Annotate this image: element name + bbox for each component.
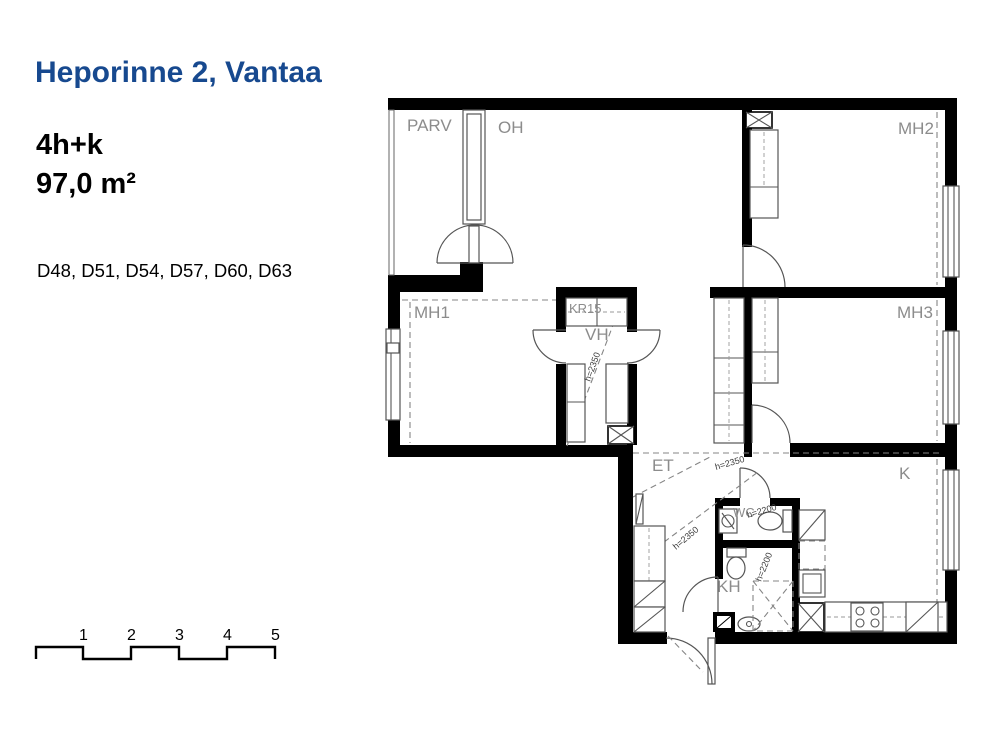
- door-vh-right: [627, 330, 660, 363]
- door-kh: [683, 577, 718, 612]
- height-label-kh: h=2200: [754, 551, 775, 583]
- scale-tick-3: 3: [175, 627, 184, 644]
- kitchen-stove: [851, 603, 883, 631]
- duct-detail: [717, 616, 731, 628]
- duct-box-mh2: [746, 112, 772, 128]
- closet-et: [634, 494, 665, 632]
- room-label-kr15: KR15: [569, 301, 602, 316]
- wardrobe-hall: [714, 298, 744, 443]
- window-mh2: [943, 186, 959, 277]
- scale-tick-5: 5: [271, 627, 280, 644]
- scale-tick-1: 1: [79, 627, 88, 644]
- duct-box-vh: [608, 426, 634, 444]
- room-label-kh: KH: [717, 577, 741, 596]
- room-label-parv: PARV: [407, 116, 452, 135]
- room-label-mh1: MH1: [414, 303, 450, 322]
- height-label-et-top: h=2350: [714, 454, 746, 472]
- kh-sink: [738, 617, 760, 631]
- entrance-door: [666, 636, 715, 684]
- door-mh2: [743, 245, 785, 287]
- balcony-parapet: [389, 110, 394, 275]
- room-label-et: ET: [652, 456, 674, 475]
- scale-bar: 1 2 3 4 5: [36, 627, 280, 659]
- kitchen-corner-cabinet: [906, 602, 938, 632]
- window-mh3: [943, 331, 959, 424]
- room-labels: PARV OH MH2 MH1 KR15 VH MH3 ET K WC KH: [407, 116, 934, 596]
- wardrobe-mh3: [752, 298, 778, 383]
- window-kitchen: [943, 470, 959, 570]
- room-label-vh: VH: [585, 325, 609, 344]
- kh-shower: [753, 581, 793, 631]
- scale-bar-line: [36, 647, 275, 659]
- room-label-mh3: MH3: [897, 303, 933, 322]
- floor-plan: PARV OH MH2 MH1 KR15 VH MH3 ET K WC KH h…: [0, 0, 1000, 750]
- room-label-k: K: [899, 464, 911, 483]
- scale-tick-2: 2: [127, 627, 136, 644]
- room-label-oh: OH: [498, 118, 524, 137]
- room-label-mh2: MH2: [898, 119, 934, 138]
- scale-tick-4: 4: [223, 627, 232, 644]
- door-mh3: [752, 405, 790, 443]
- door-vh-left: [533, 330, 566, 363]
- wardrobe-mh2: [750, 130, 778, 218]
- kh-toilet: [727, 548, 746, 579]
- height-label-et-diag: h=2350: [671, 524, 701, 551]
- window-mh1: [386, 329, 400, 420]
- door-wc: [740, 468, 770, 498]
